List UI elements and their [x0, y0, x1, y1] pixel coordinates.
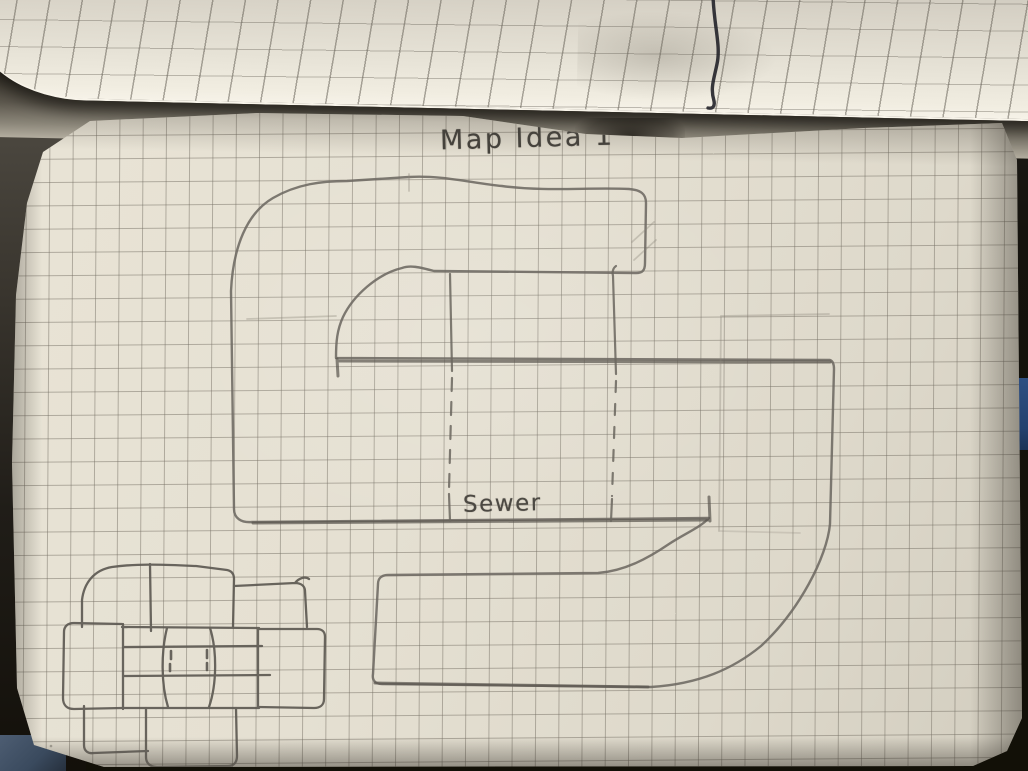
room-bottom-left	[84, 706, 148, 753]
hub-corridor-lines	[124, 646, 270, 676]
room-bottom	[146, 708, 237, 767]
pencil-dot	[50, 745, 53, 748]
room-top-divider	[150, 564, 151, 631]
room-right	[258, 629, 325, 708]
room-left	[63, 623, 122, 709]
faint-construction-lines	[247, 174, 829, 533]
room-top-right	[234, 578, 309, 627]
room-top	[82, 565, 234, 627]
map-dark-strokes	[253, 359, 830, 687]
ink-showthrough-smudge	[577, 9, 779, 103]
notebook-photo: Map Idea 1 Sewer	[0, 0, 1028, 771]
map-outline-s-shape	[231, 177, 834, 687]
sewer-label: Sewer	[463, 490, 542, 518]
sewer-tunnel-right-line	[611, 266, 616, 521]
hub-door-dashes	[170, 650, 207, 671]
sewer-tunnel-left-line	[449, 274, 452, 521]
hub-walls	[122, 624, 259, 709]
rooms-cluster	[50, 564, 325, 767]
